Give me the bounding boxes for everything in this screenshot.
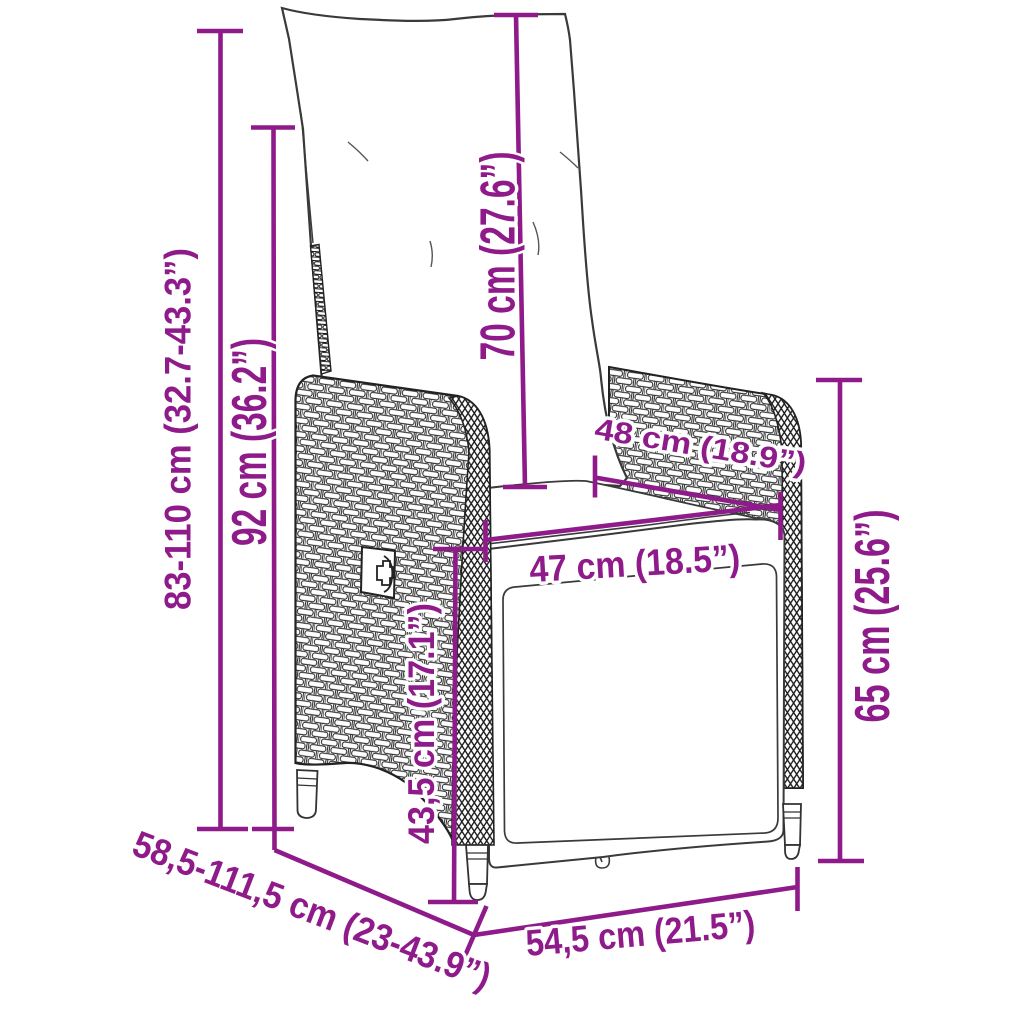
svg-text:70 cm (27.6”): 70 cm (27.6”): [472, 152, 526, 361]
svg-text:65 cm (25.6”): 65 cm (25.6”): [846, 510, 900, 723]
svg-text:92 cm (36.2”): 92 cm (36.2”): [223, 338, 277, 546]
svg-text:83-110 cm (32.7-43.3”): 83-110 cm (32.7-43.3”): [158, 248, 199, 610]
svg-text:43,5 cm (17.1”): 43,5 cm (17.1”): [401, 603, 442, 844]
